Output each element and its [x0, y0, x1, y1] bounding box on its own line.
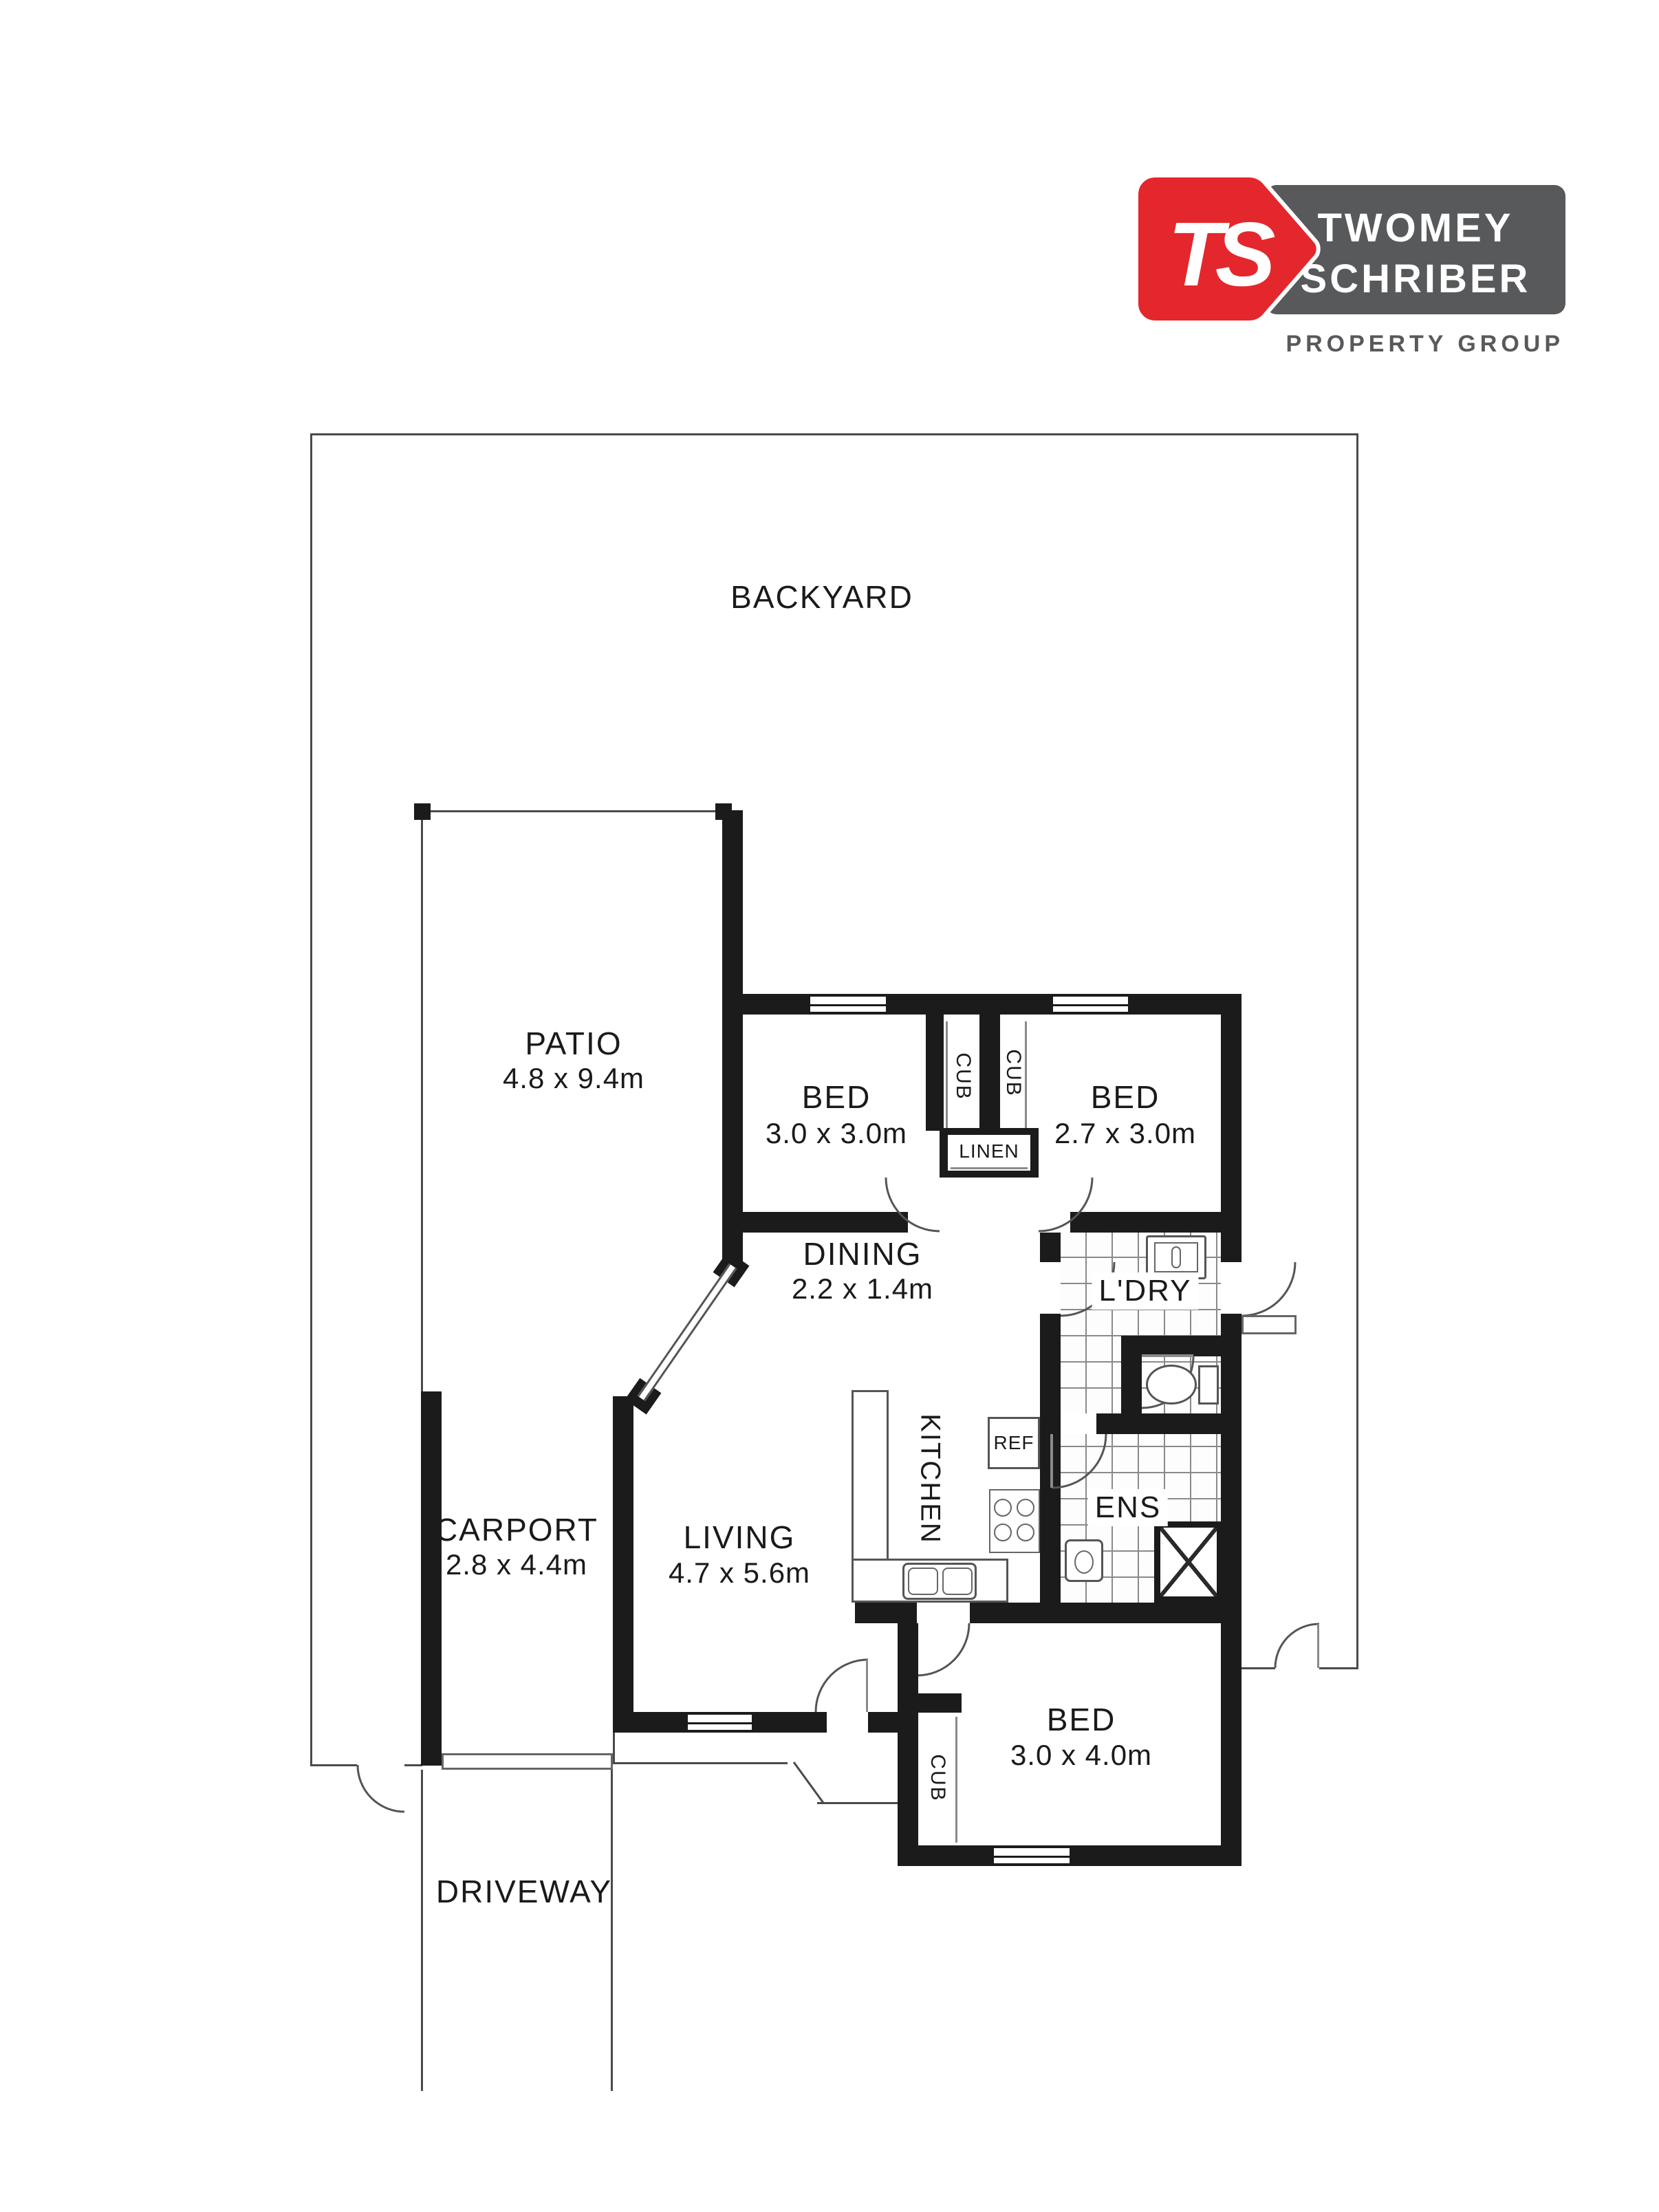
toilet-cistern [1198, 1365, 1219, 1405]
room-dims-bed1: 3.0 x 3.0m [766, 1117, 907, 1150]
gate-arc-left [358, 1765, 404, 1812]
logo-name-line2: SCHRIBER [1301, 257, 1531, 301]
ens-door-leaf [1050, 1434, 1053, 1488]
cooktop-burner-2 [1017, 1499, 1034, 1517]
door-arc-bed3 [917, 1623, 969, 1676]
cub3-top-stub [918, 1693, 962, 1713]
room-label-kitchen: KITCHEN [915, 1413, 946, 1544]
kitchen-sink-bowl-right [942, 1568, 973, 1595]
cub2-front-line [1025, 1021, 1027, 1128]
wall-south-band-a [855, 1603, 917, 1623]
logo-name-line1: TWOMEY [1318, 206, 1514, 250]
wall-south-band-b [970, 1603, 1241, 1623]
patio-edge-left [421, 810, 423, 1391]
diagonal-glazing [638, 1264, 737, 1401]
label-cub2: CUB [1001, 1049, 1025, 1096]
yard-line-right-b [1319, 1667, 1358, 1669]
room-dims-dining: 2.2 x 1.4m [792, 1272, 933, 1305]
room-label-living: LIVING [684, 1519, 796, 1556]
door-arc-front [816, 1660, 868, 1712]
logo-monogram: TS [1168, 204, 1275, 305]
wc-door-leaf [1142, 1354, 1193, 1357]
porch-edge-diag [793, 1761, 824, 1803]
room-dims-bed3: 3.0 x 4.0m [1010, 1739, 1152, 1772]
wall-bed1-east [926, 1015, 944, 1131]
carport-wall-left [421, 1391, 442, 1766]
cooktop [989, 1489, 1040, 1553]
gate-arc-right [1275, 1624, 1319, 1668]
cooktop-burner-3 [994, 1524, 1012, 1541]
patio-post-left [414, 803, 431, 820]
wall-core-west-a [1040, 1233, 1061, 1262]
door-arc-laundry-ext [1241, 1262, 1295, 1316]
room-label-ensuite: ENS [1088, 1489, 1168, 1526]
porch-edge-b [817, 1802, 898, 1804]
room-dims-living: 4.7 x 5.6m [669, 1557, 810, 1590]
yard-line-right-a [1241, 1667, 1275, 1669]
wall-ens-north-b [1096, 1413, 1241, 1434]
room-label-bed3: BED [1047, 1701, 1116, 1738]
room-label-carport: CARPORT [435, 1511, 598, 1548]
label-linen: LINEN [959, 1140, 1019, 1162]
label-cub1: CUB [951, 1052, 975, 1100]
boundary-bottom-stub [404, 1764, 422, 1766]
boundary-top [310, 433, 1358, 435]
room-dims-patio: 4.8 x 9.4m [503, 1062, 644, 1095]
agency-logo: TS TWOMEY SCHRIBER PROPERTY GROUP [1135, 174, 1575, 360]
carport-opening [442, 1753, 613, 1770]
room-label-backyard: BACKYARD [730, 578, 913, 616]
room-label-patio: PATIO [525, 1025, 622, 1062]
wall-bed2-south [1070, 1212, 1241, 1233]
porch-edge-a [613, 1762, 788, 1764]
boundary-bottom-left [310, 1764, 357, 1766]
wall-wc-north [1121, 1336, 1241, 1356]
wall-west-upper [722, 810, 743, 1262]
laundry-tub-plug [1171, 1246, 1181, 1268]
cub1-front-line [946, 1021, 948, 1128]
logo-tagline: PROPERTY GROUP [1286, 331, 1564, 357]
patio-edge-top [421, 810, 743, 812]
window-bed2 [1050, 994, 1131, 1015]
room-label-laundry: L'DRY [1092, 1272, 1199, 1310]
door-arc-bed2 [1039, 1178, 1092, 1231]
wall-west-lower [613, 1396, 633, 1733]
kitchen-sink-bowl-left [908, 1568, 938, 1595]
room-dims-bed2: 2.7 x 3.0m [1054, 1117, 1196, 1150]
window-living [684, 1712, 755, 1733]
door-arc-bed1 [886, 1178, 940, 1231]
kitchen-bench-vertical [852, 1390, 889, 1574]
label-ref: REF [994, 1432, 1034, 1454]
window-bed3 [990, 1845, 1073, 1866]
boundary-left [310, 433, 312, 1766]
window-bed1 [807, 994, 889, 1015]
cub3-front-line [955, 1717, 957, 1843]
laundry-step [1241, 1315, 1297, 1334]
label-cub3: CUB [926, 1754, 949, 1801]
driveway-edge-right [611, 1770, 613, 2091]
wall-cub-centre [979, 1015, 1000, 1131]
shower [1154, 1521, 1223, 1603]
wall-wc-west [1121, 1356, 1142, 1413]
room-label-dining: DINING [803, 1235, 922, 1272]
linen-front-line [951, 1167, 1028, 1169]
wall-north [722, 994, 1241, 1015]
porch-edge-left [613, 1733, 615, 1764]
room-dims-carport: 2.8 x 4.4m [446, 1548, 587, 1581]
wall-ens-north-a [1040, 1413, 1052, 1434]
driveway-edge-left [421, 1770, 423, 2091]
wall-living-south-b [868, 1712, 901, 1733]
toilet-bowl [1146, 1365, 1197, 1405]
gate-leaf-right [1317, 1624, 1319, 1668]
cooktop-burner-4 [1017, 1524, 1034, 1541]
front-door-leaf [866, 1660, 868, 1712]
vanity-bowl [1074, 1550, 1094, 1574]
room-label-bed2: BED [1091, 1078, 1160, 1116]
room-label-bed1: BED [802, 1078, 871, 1116]
wall-bed3-west [898, 1623, 918, 1866]
floorplan-page: TS TWOMEY SCHRIBER PROPERTY GROUP BACKYA… [0, 0, 1659, 2212]
wall-east-lower [1221, 1314, 1241, 1866]
boundary-right [1356, 433, 1358, 1669]
cooktop-burner-1 [994, 1499, 1012, 1517]
wall-bed1-south [743, 1212, 908, 1233]
door-arc-ens [1052, 1434, 1106, 1488]
room-label-driveway: DRIVEWAY [436, 1873, 612, 1910]
